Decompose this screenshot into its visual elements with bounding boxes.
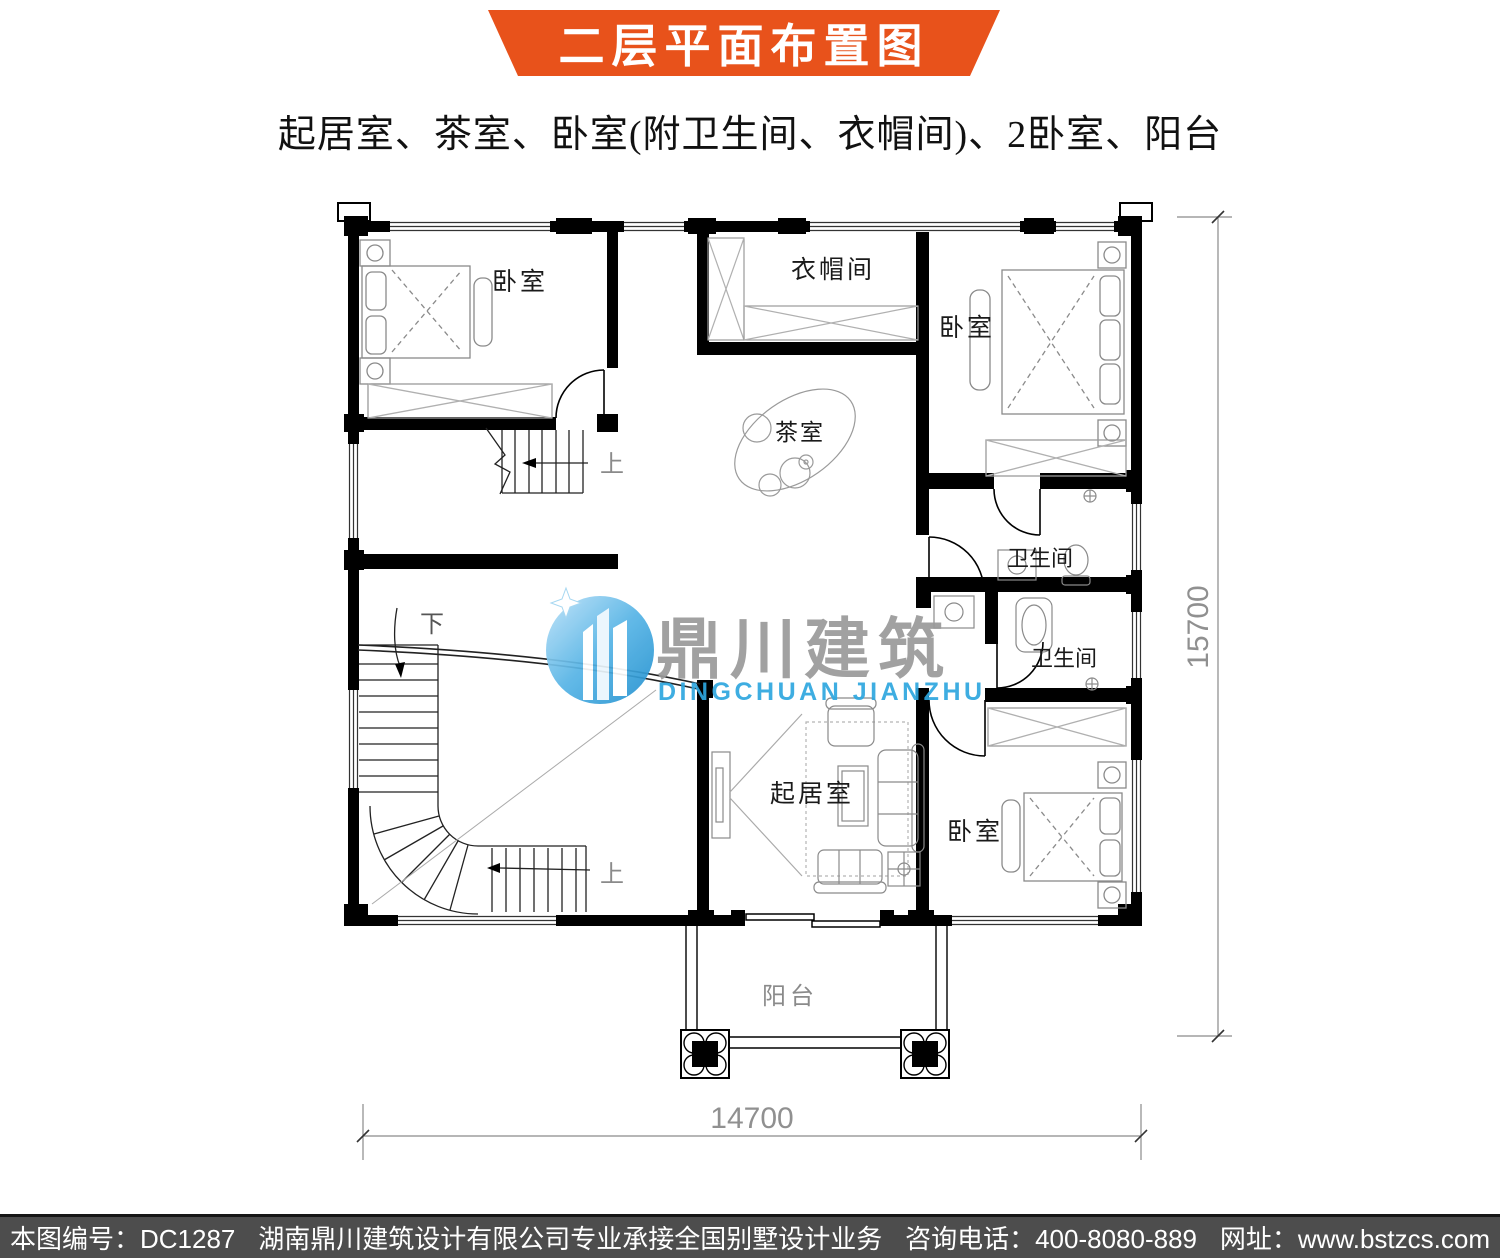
windows	[348, 221, 1142, 926]
room-label-bathroom-upper: 卫生间	[1007, 546, 1073, 571]
stairs-small	[486, 428, 588, 494]
page: 二层平面布置图 起居室、茶室、卧室(附卫生间、衣帽间)、2卧室、阳台	[0, 0, 1500, 1258]
balcony-column-right	[901, 1030, 949, 1078]
dimension-bottom: 14700	[357, 1102, 1147, 1160]
stair-label-up-main: 上	[600, 861, 624, 888]
footer-company: 湖南鼎川建筑设计有限公司专业承接全国别墅设计业务	[258, 1219, 882, 1256]
watermark-cn: 鼎川建筑	[656, 614, 952, 687]
footer-bar: 本图编号：DC1287 湖南鼎川建筑设计有限公司专业承接全国别墅设计业务 咨询电…	[0, 1214, 1500, 1258]
furniture-bedroom-upper-left	[360, 240, 552, 418]
floor-plan-canvas: 15700 14700 卧室 衣帽间 卧室 茶室 卫生间 卫生间 起居室 卧室 …	[0, 0, 1500, 1258]
room-label-bedroom-upper-left: 卧室	[492, 268, 548, 296]
dimension-right-value: 15700	[1182, 585, 1215, 668]
watermark-en: DINGCHUAN JIANZHU	[658, 678, 986, 706]
room-label-tea-room: 茶室	[775, 420, 825, 445]
footer-phone: 咨询电话：400-8080-889	[905, 1219, 1197, 1256]
room-label-bedroom-upper-right: 卧室	[939, 314, 995, 342]
interior-walls	[348, 221, 1142, 926]
footer-website: 网址：www.bstzcs.com	[1220, 1219, 1490, 1256]
stair-label-down: 下	[420, 612, 444, 638]
room-label-cloakroom: 衣帽间	[791, 256, 875, 284]
room-label-living-room: 起居室	[770, 780, 854, 808]
footer-drawing-number: 本图编号：DC1287	[10, 1219, 235, 1256]
furniture-cloakroom	[708, 238, 918, 340]
room-label-bedroom-bottom-right: 卧室	[947, 818, 1003, 846]
furniture-bedroom-upper-right	[970, 242, 1126, 476]
balcony-column-left	[681, 1030, 729, 1078]
outer-walls	[348, 221, 1142, 926]
dimension-right: 15700	[1177, 211, 1232, 1042]
room-label-bathroom-lower: 卫生间	[1031, 646, 1097, 671]
room-label-balcony: 阳台	[762, 983, 818, 1010]
stair-label-up-small: 上	[600, 451, 624, 478]
furniture-bedroom-bottom-right	[988, 708, 1126, 908]
columns	[344, 216, 1142, 926]
furniture-bathroom-lower	[934, 596, 1098, 690]
dimension-bottom-value: 14700	[710, 1102, 793, 1135]
watermark-logo-icon	[546, 588, 654, 704]
